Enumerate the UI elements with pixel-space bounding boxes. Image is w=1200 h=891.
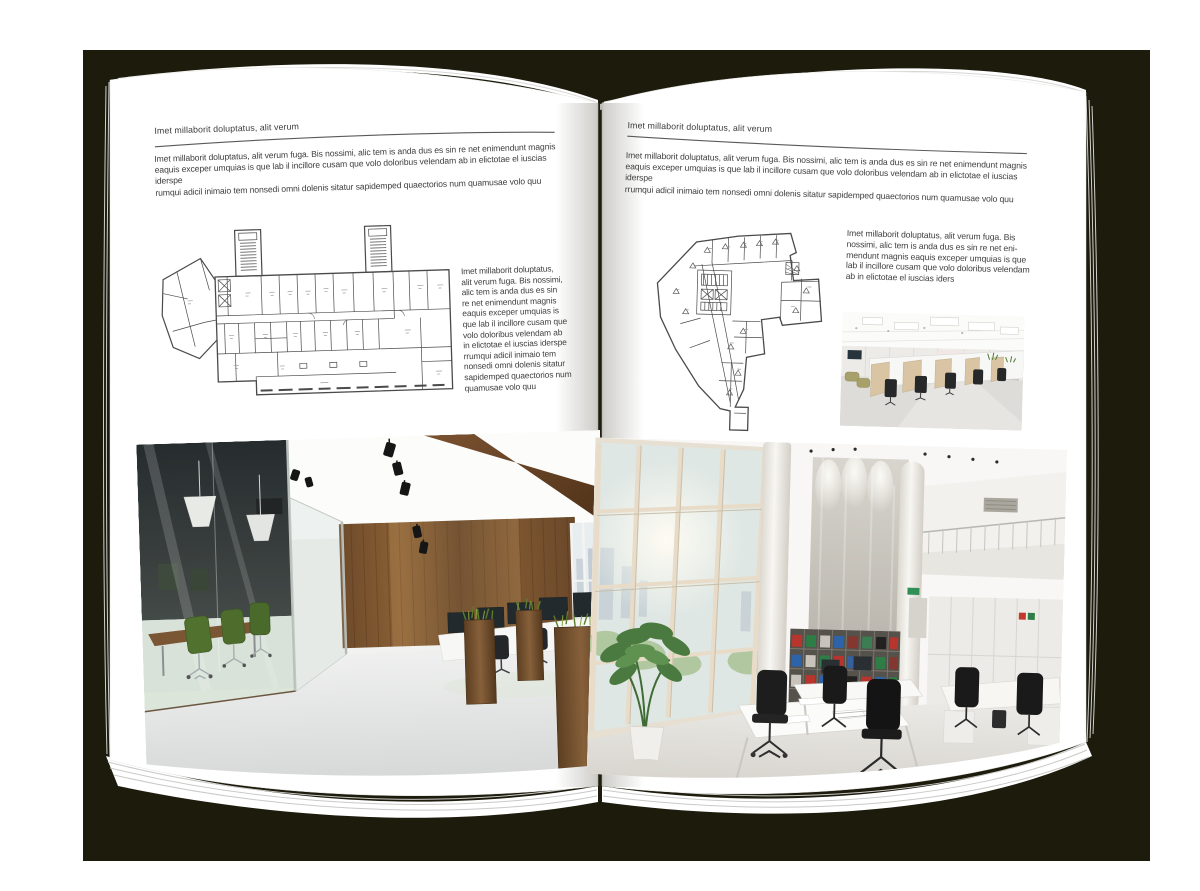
floor-plan-right [638,221,839,438]
green-chair [184,615,213,654]
page-right-intro: Imet millaborit doluptatus, alit verum f… [625,150,1045,206]
green-chair [220,609,245,645]
green-chair [249,602,270,635]
exit-sign [907,588,919,595]
plan-room-label-marks [188,285,447,387]
page-left-side-text: Imet millaborit doluptatus, alit verum f… [461,263,572,393]
plant-pot [629,726,664,761]
photo-bright-office [586,437,1067,794]
page-left: Imet millaborit doluptatus, alit verum I… [150,105,585,790]
photo-loft-office [136,430,611,788]
page-right-side-text: Imet millaborit doluptatus, alit verum f… [846,228,1031,287]
page-left-intro: Imet millaborit doluptatus, alit verum f… [154,141,566,199]
page-right: Imet millaborit doluptatus, alit verum I… [604,108,1046,803]
page-right-header: Imet millaborit doluptatus, alit verum [627,120,772,134]
floor-plan-left [156,221,458,416]
safety-sign [1028,613,1035,620]
waste-bin [992,710,1006,728]
ceiling [842,312,1025,351]
concrete-wall [808,455,909,631]
magazine-mockup: Imet millaborit doluptatus, alit verum I… [0,0,1200,891]
page-left-header: Imet millaborit doluptatus, alit verum [154,121,299,136]
photo-cubicle-office [840,312,1025,431]
safety-sign [1019,613,1026,620]
